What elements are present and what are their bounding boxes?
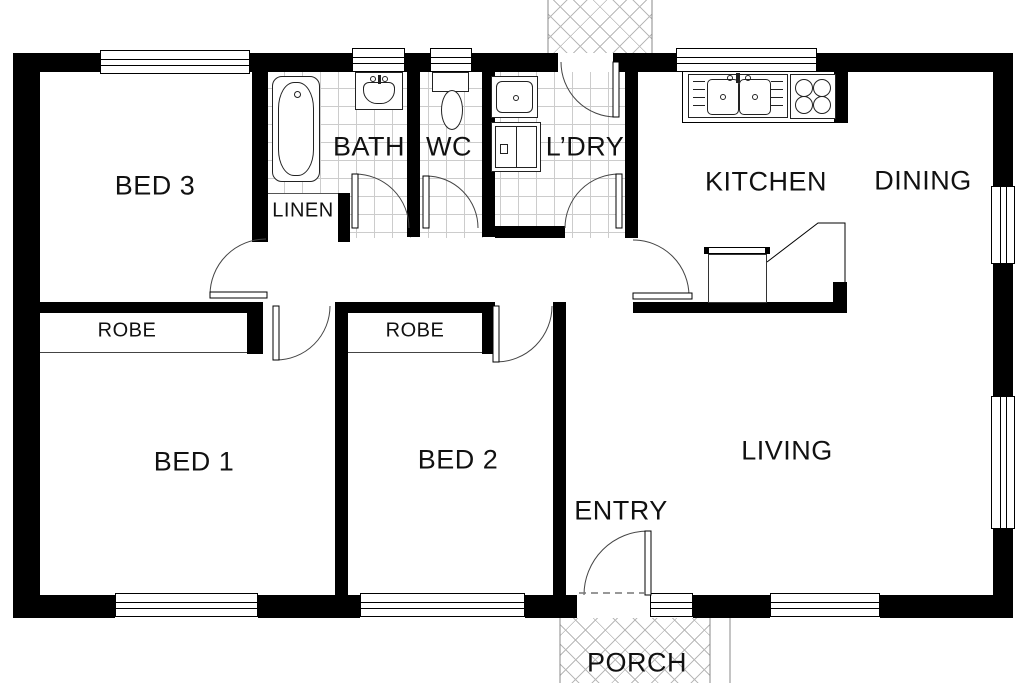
breakfast-bench-outline [767, 223, 845, 282]
door-arc-bed1 [276, 306, 330, 360]
door-leaf-wc [423, 176, 429, 228]
door-leaf-front [645, 531, 651, 595]
door-arc-bed3 [210, 239, 266, 295]
door-leaf-bed1 [273, 306, 279, 360]
door-arc-ldry [565, 174, 619, 228]
door-leaf-bed2 [493, 306, 499, 362]
door-leaf-bed3 [210, 292, 267, 298]
door-arc-rear [561, 62, 616, 117]
door-arc-bath [355, 174, 409, 228]
door-leaf-ldry [616, 174, 622, 228]
door-arc-kitchen [633, 240, 689, 296]
door-leaf-bath [352, 174, 358, 228]
floorplan-canvas: BED 3 BATH WC L’DRY KITCHEN DINING LINEN… [0, 0, 1024, 683]
door-swings-layer [0, 0, 1024, 683]
door-arc-bed2 [496, 306, 552, 362]
door-leaf-rear [613, 62, 619, 117]
door-arc-front [584, 531, 648, 595]
door-leaf-kitchen [633, 293, 692, 299]
door-arc-wc [426, 176, 478, 228]
